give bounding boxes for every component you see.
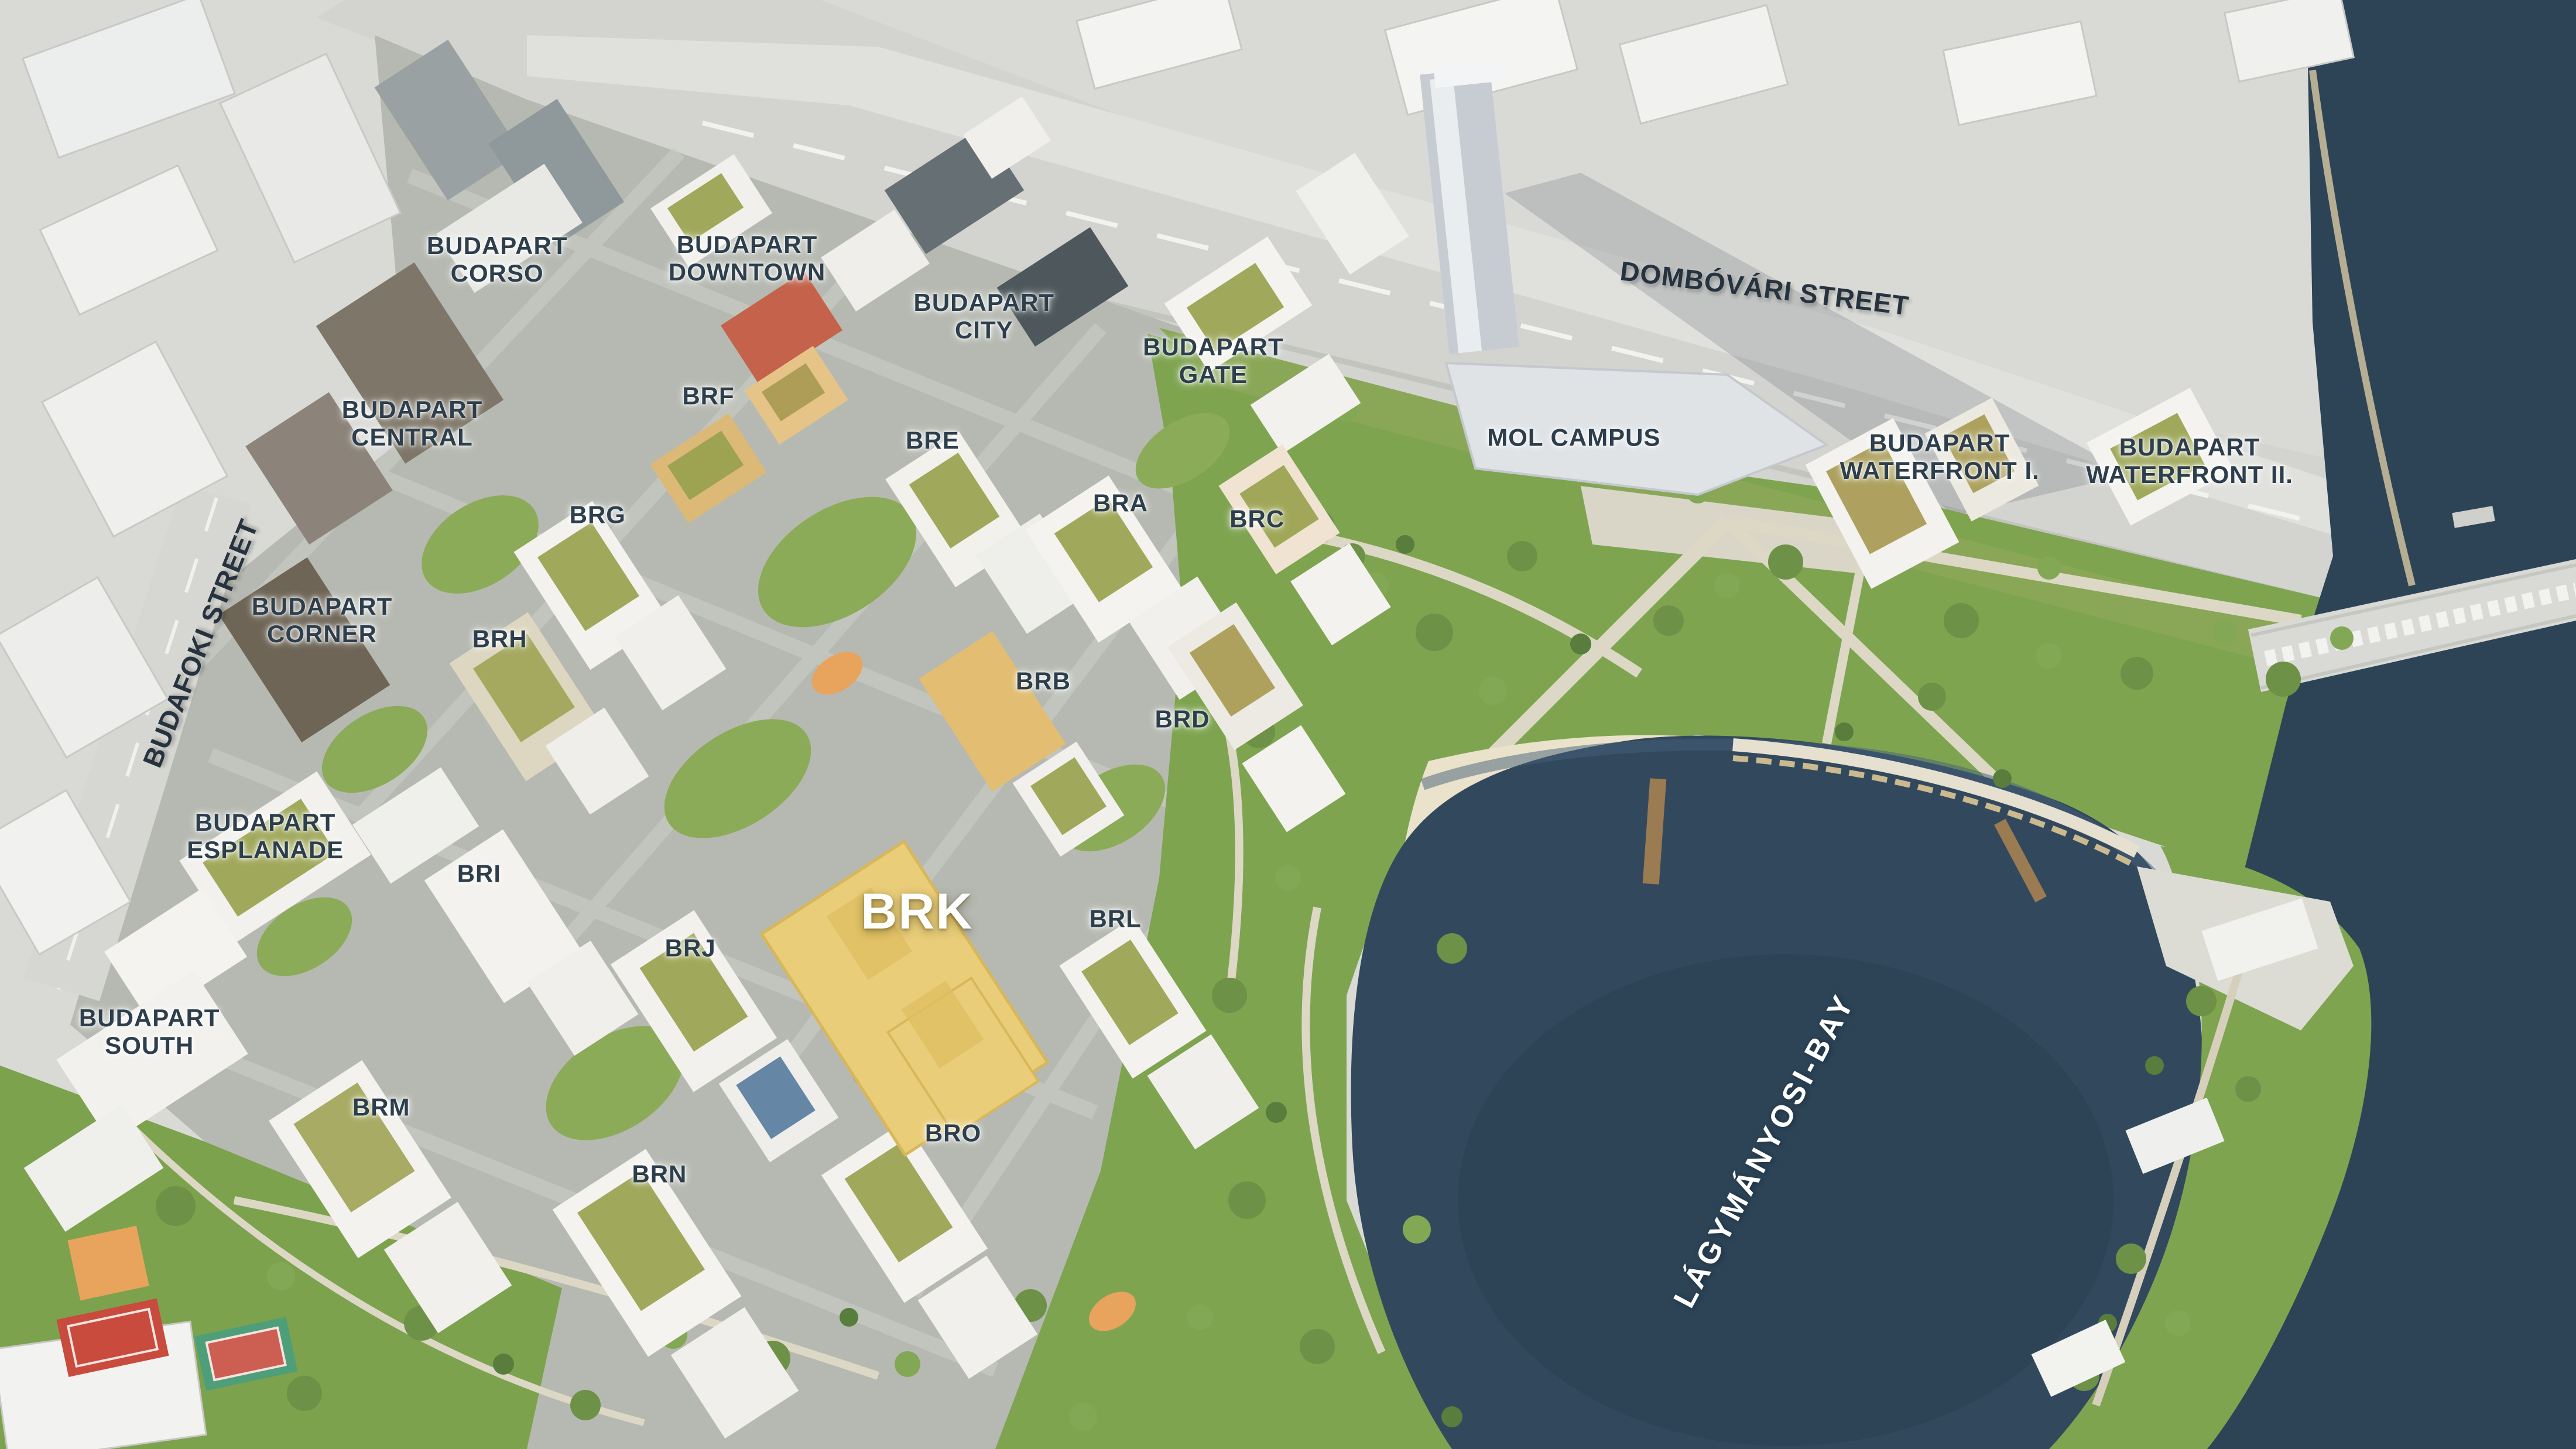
map-label-brh[interactable]: BRH <box>472 625 527 653</box>
map-label-brl[interactable]: BRL <box>1090 905 1142 933</box>
map-label-brj[interactable]: BRJ <box>665 934 716 961</box>
map-label-budapart-corso[interactable]: BUDAPART CORSO <box>427 232 568 287</box>
map-label-brm[interactable]: BRM <box>352 1093 410 1121</box>
map-label-bro[interactable]: BRO <box>925 1119 981 1147</box>
map-label-brc[interactable]: BRC <box>1229 505 1284 533</box>
map-label-budapart-corner[interactable]: BUDAPART CORNER <box>252 592 393 648</box>
map-label-brb[interactable]: BRB <box>1016 667 1071 695</box>
map-label-budafoki-street: BUDAFOKI STREET <box>138 515 265 772</box>
budapart-masterplan-map: BUDAPART CORSOBUDAPART DOWNTOWNBUDAPART … <box>0 0 2576 1449</box>
map-label-brd[interactable]: BRD <box>1155 705 1210 732</box>
map-label-brn[interactable]: BRN <box>632 1160 687 1187</box>
map-label-dombovari-street: DOMBÓVÁRI STREET <box>1618 256 1910 321</box>
map-label-budapart-central[interactable]: BUDAPART CENTRAL <box>342 396 483 451</box>
map-label-lagymanyosi-bay: LÁGYMÁNYOSI-BAY <box>1667 988 1862 1314</box>
map-label-bri[interactable]: BRI <box>457 860 501 888</box>
label-layer: BUDAPART CORSOBUDAPART DOWNTOWNBUDAPART … <box>0 0 2576 1449</box>
map-label-budapart-waterfront-2[interactable]: BUDAPART WATERFRONT II. <box>2086 433 2293 488</box>
map-label-bre[interactable]: BRE <box>906 427 960 454</box>
map-label-budapart-waterfront-1[interactable]: BUDAPART WATERFRONT I. <box>1840 429 2040 484</box>
map-label-brk[interactable]: BRK <box>861 883 973 940</box>
map-label-budapart-gate[interactable]: BUDAPART GATE <box>1143 333 1284 388</box>
map-label-brg[interactable]: BRG <box>570 501 626 528</box>
map-label-budapart-esplanade[interactable]: BUDAPART ESPLANADE <box>187 809 344 864</box>
map-label-budapart-city[interactable]: BUDAPART CITY <box>914 289 1055 344</box>
map-label-budapart-downtown[interactable]: BUDAPART DOWNTOWN <box>669 231 826 286</box>
map-label-bra[interactable]: BRA <box>1093 489 1148 516</box>
map-label-budapart-south[interactable]: BUDAPART SOUTH <box>79 1004 220 1059</box>
map-label-brf[interactable]: BRF <box>682 382 734 409</box>
map-label-mol-campus[interactable]: MOL CAMPUS <box>1487 424 1660 451</box>
